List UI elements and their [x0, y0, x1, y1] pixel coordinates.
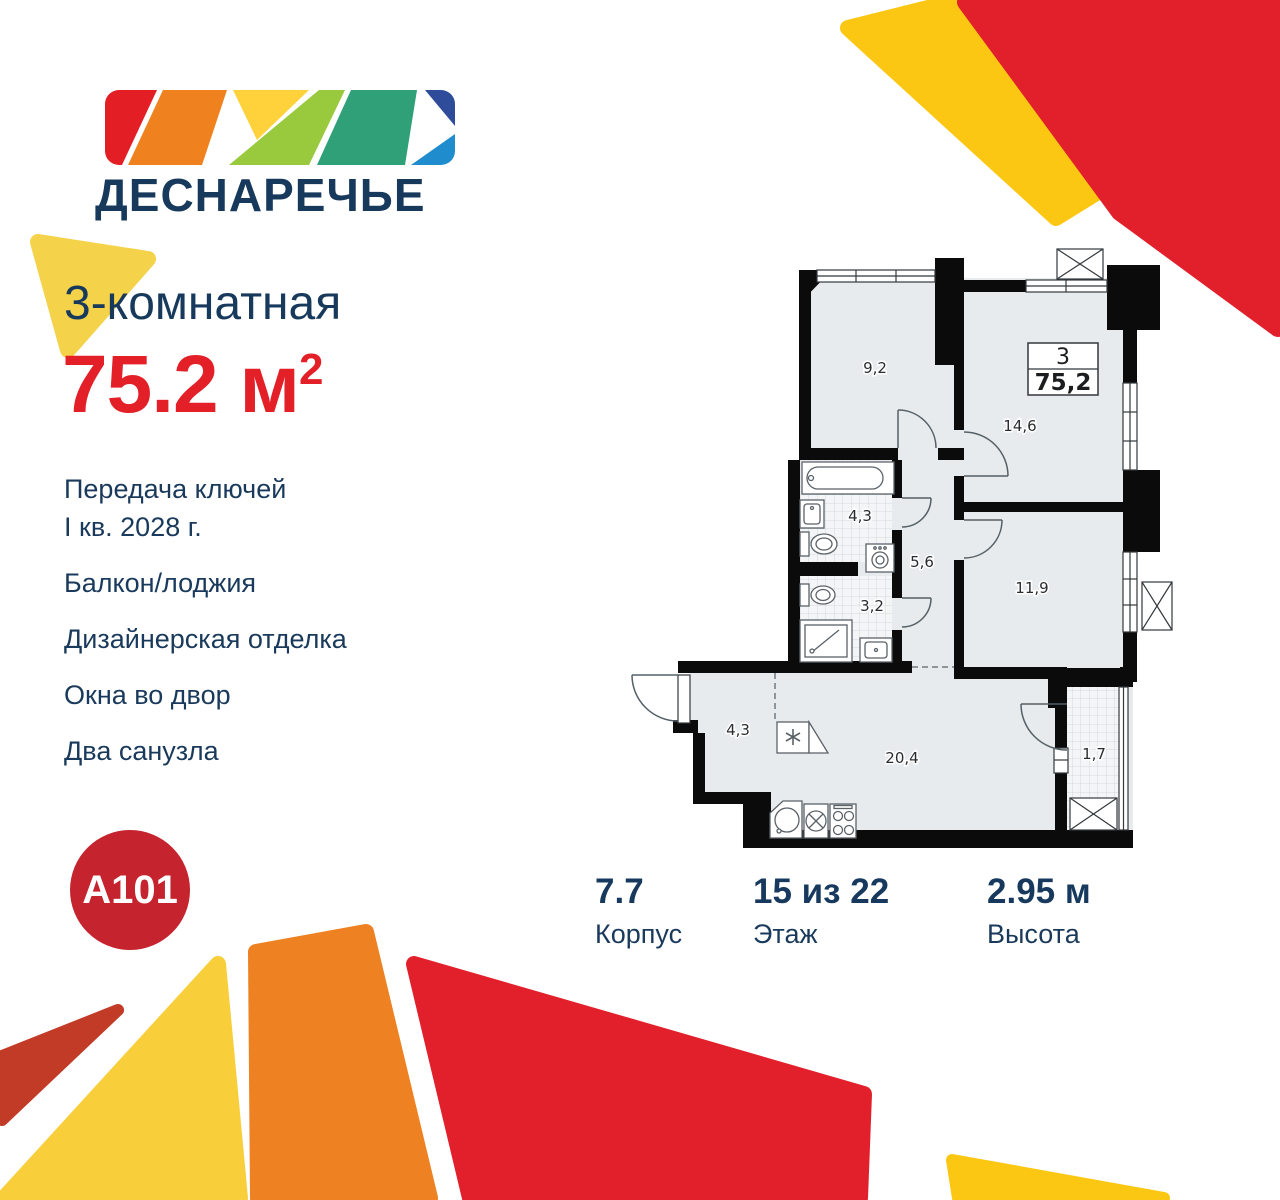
- feature-courtyard-windows: Окна во двор: [64, 676, 544, 714]
- label-room-14-6: 14,6: [1003, 417, 1036, 435]
- apartment-badge: 3 75,2: [1028, 343, 1098, 396]
- label-hallway-5-6: 5,6: [910, 553, 934, 571]
- logo-tile-darkblue: [425, 90, 455, 126]
- label-entry-hall-4-3: 4,3: [726, 721, 750, 739]
- deco-wedge-bottom-right-yellow: [952, 1160, 1164, 1198]
- window-room-14-6-right: [1123, 383, 1137, 470]
- bathtub-icon: [802, 462, 894, 494]
- feature-list: Передача ключей I кв. 2028 г. Балкон/лод…: [64, 470, 544, 788]
- loggia-glazing: [1119, 687, 1128, 830]
- stat-ceiling-height-value: 2.95 м: [987, 872, 1091, 912]
- area-value: 75.2 м2: [62, 338, 323, 432]
- stat-building-label: Корпус: [595, 919, 682, 950]
- floorplan: 3 75,2 9,2 14,6 4,3 5,6 3,2 11,9 4,3 20,…: [630, 248, 1180, 863]
- stove-icon: [830, 804, 856, 838]
- feature-keys-date: Передача ключей I кв. 2028 г.: [64, 470, 544, 546]
- deco-triangle-bottom-red: [414, 964, 864, 1198]
- feature-design-finish: Дизайнерская отделка: [64, 620, 544, 658]
- stat-floor-value: 15 из 22: [753, 872, 889, 912]
- stat-ceiling-height: 2.95 м Высота: [987, 872, 1091, 950]
- door-entrance: [632, 675, 678, 721]
- deco-shape-bottom-orange: [256, 932, 430, 1198]
- label-room-9-2: 9,2: [863, 359, 887, 377]
- stat-ceiling-height-label: Высота: [987, 919, 1091, 950]
- toilet-bathroom-icon: [800, 532, 837, 556]
- window-room-11-9-right: [1123, 552, 1137, 632]
- area-number: 75.2 м: [62, 339, 299, 430]
- window-room-14-6-top: [1026, 280, 1107, 292]
- label-kitchen-20-4: 20,4: [885, 749, 918, 767]
- developer-logo-text: A101: [82, 868, 178, 913]
- feature-balcony: Балкон/лоджия: [64, 564, 544, 602]
- label-room-11-9: 11,9: [1015, 579, 1048, 597]
- feature-two-bathrooms: Два санузла: [64, 732, 544, 770]
- washing-machine-icon: [866, 544, 894, 572]
- brand-logo-text: ДЕСНАРЕЧЬЕ: [95, 168, 426, 222]
- shower-icon: [800, 620, 852, 662]
- balcony-box-top: [1057, 249, 1103, 279]
- label-bathroom-4-3: 4,3: [848, 507, 872, 525]
- badge-area: 75,2: [1035, 370, 1092, 396]
- balcony-box-right: [1142, 582, 1172, 630]
- stat-building-value: 7.7: [595, 872, 682, 912]
- brand-logo-mosaic: [105, 90, 455, 165]
- loggia-door: [1054, 748, 1068, 773]
- label-loggia-1-7: 1,7: [1082, 745, 1106, 763]
- ad-card: ДЕСНАРЕЧЬЕ 3-комнатная 75.2 м2 Передача …: [0, 0, 1280, 1200]
- hob-icon: [804, 804, 828, 838]
- logo-tile-lightblue: [411, 134, 455, 165]
- stat-floor: 15 из 22 Этаж: [753, 872, 889, 950]
- sink-bathroom-icon: [800, 500, 824, 528]
- sink-wc-icon: [860, 638, 892, 662]
- area-superscript: 2: [299, 345, 322, 394]
- page-title: 3-комнатная: [64, 276, 341, 331]
- stat-building: 7.7 Корпус: [595, 872, 682, 950]
- window-room-9-2: [817, 270, 935, 282]
- balcony-box-loggia: [1070, 798, 1117, 830]
- stat-floor-label: Этаж: [753, 919, 889, 950]
- label-wc-3-2: 3,2: [860, 597, 884, 615]
- entrance-door-opening: [678, 675, 690, 723]
- developer-logo: A101: [70, 830, 190, 950]
- toilet-wc-icon: [800, 584, 835, 606]
- badge-rooms: 3: [1056, 345, 1070, 370]
